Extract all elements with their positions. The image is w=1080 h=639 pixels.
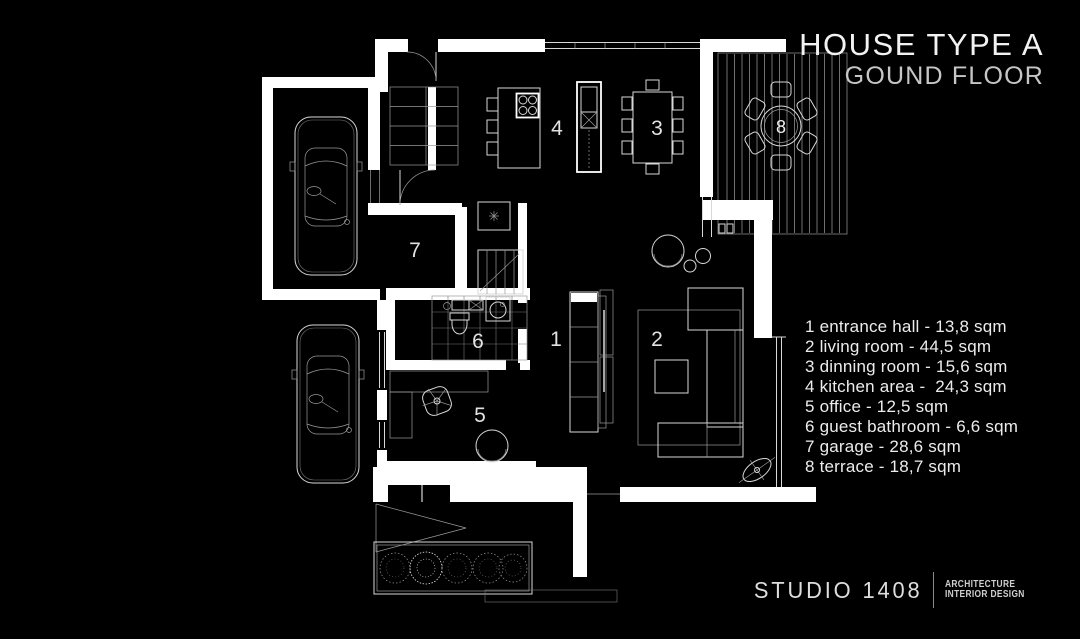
door-arc-garage-hall xyxy=(400,170,435,205)
legend-item: 7 garage - 28,6 sqm xyxy=(805,437,1018,457)
walls xyxy=(262,39,816,577)
kitchen-counter xyxy=(577,82,601,172)
toilet-icon xyxy=(450,313,469,334)
footer-divider xyxy=(933,572,934,608)
room-label-garage: 7 xyxy=(409,239,421,262)
bush-icon xyxy=(380,552,527,584)
legend-item: 1 entrance hall - 13,8 sqm xyxy=(805,317,1018,337)
studio-name: STUDIO 1408 xyxy=(754,577,923,604)
room-label-entrance-hall: 1 xyxy=(550,328,562,351)
room-label-guest-bathroom: 6 xyxy=(472,330,484,353)
stove-icon xyxy=(517,94,539,118)
door-arc-entry xyxy=(407,52,436,81)
studio-tagline: ARCHITECTURE INTERIOR DESIGN xyxy=(945,580,1040,601)
washing-machine-icon xyxy=(486,297,510,321)
closet xyxy=(478,202,510,230)
floor-lamp-icon xyxy=(732,448,782,493)
room-label-terrace: 8 xyxy=(776,117,786,137)
legend-item: 4 kitchen area - 24,3 sqm xyxy=(805,377,1018,397)
legend-item: 6 guest bathroom - 6,6 sqm xyxy=(805,417,1018,437)
room-label-dinning-room: 3 xyxy=(651,117,663,140)
coffee-table xyxy=(655,360,688,393)
driveway-car xyxy=(292,325,364,483)
kitchen-island xyxy=(487,88,540,168)
storage-cabinets xyxy=(390,87,458,165)
legend-item: 5 office - 12,5 sqm xyxy=(805,397,1018,417)
room-label-living-room: 2 xyxy=(651,328,663,351)
floor-drain-icon xyxy=(489,211,499,221)
legend-item: 8 terrace - 18,7 sqm xyxy=(805,457,1018,477)
office-chair xyxy=(420,384,453,417)
legend-item: 2 living room - 44,5 sqm xyxy=(805,337,1018,357)
side-tables xyxy=(684,249,711,273)
title-block: HOUSE TYPE A GOUND FLOOR xyxy=(799,28,1044,90)
page-title: HOUSE TYPE A xyxy=(799,28,1044,61)
legend-item: 3 dinning room - 15,6 sqm xyxy=(805,357,1018,377)
room-legend: 1 entrance hall - 13,8 sqm 2 living room… xyxy=(805,317,1018,477)
tv-console xyxy=(600,290,613,423)
sink-icon xyxy=(444,300,484,310)
room-label-kitchen-area: 4 xyxy=(551,117,563,140)
living-armchair xyxy=(652,235,684,267)
tagline-line-2: INTERIOR DESIGN xyxy=(945,590,1025,601)
stairs xyxy=(478,250,523,294)
room-label-office: 5 xyxy=(474,404,486,427)
office-armchair xyxy=(476,430,508,462)
garage-car xyxy=(290,117,362,275)
wardrobe xyxy=(570,292,606,432)
canvas: 1 2 3 4 5 6 7 8 HOUSE TYPE A GOUND FLOOR… xyxy=(0,0,1080,639)
page-subtitle: GOUND FLOOR xyxy=(799,63,1044,90)
studio-footer: STUDIO 1408 ARCHITECTURE INTERIOR DESIGN xyxy=(745,572,1040,608)
wall-switches xyxy=(719,224,733,233)
sofa xyxy=(658,288,743,457)
